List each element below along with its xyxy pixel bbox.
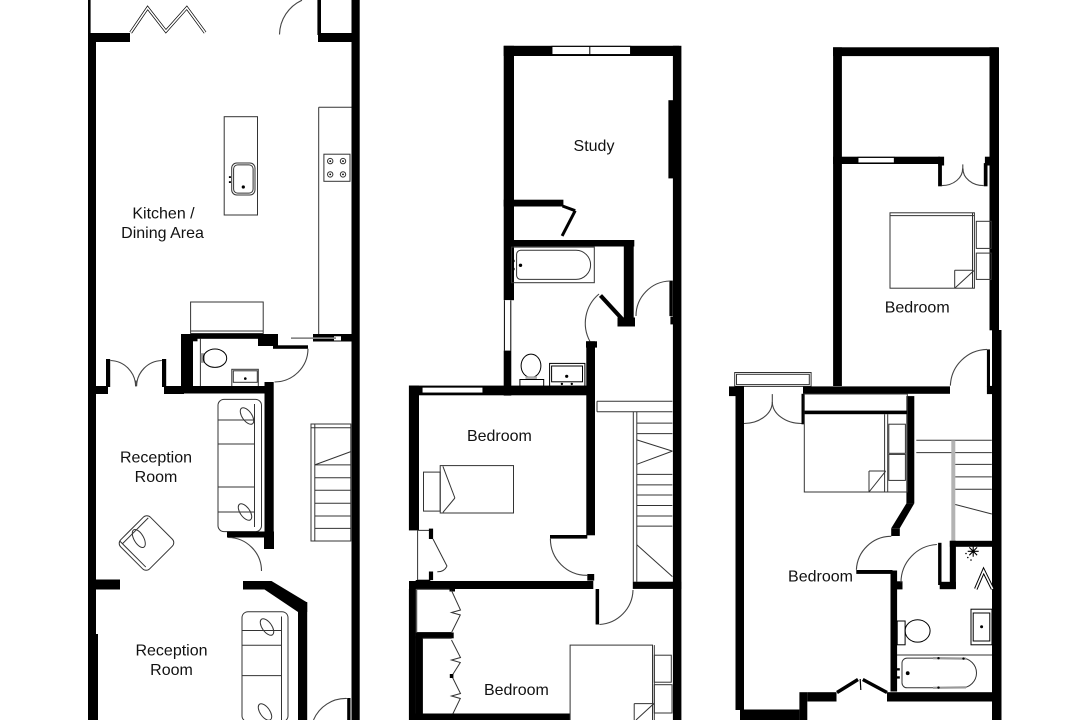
svg-text:Reception: Reception [135,643,207,660]
svg-text:Bedroom: Bedroom [467,428,532,445]
svg-text:Reception: Reception [120,450,192,467]
svg-text:Bedroom: Bedroom [885,300,950,317]
svg-text:Room: Room [135,469,178,486]
svg-text:Kitchen /: Kitchen / [132,206,195,223]
svg-text:Bedroom: Bedroom [788,569,853,586]
svg-text:Study: Study [574,138,615,155]
svg-text:Bedroom: Bedroom [484,682,549,699]
svg-text:Room: Room [150,662,193,679]
svg-text:Dining Area: Dining Area [121,225,204,242]
